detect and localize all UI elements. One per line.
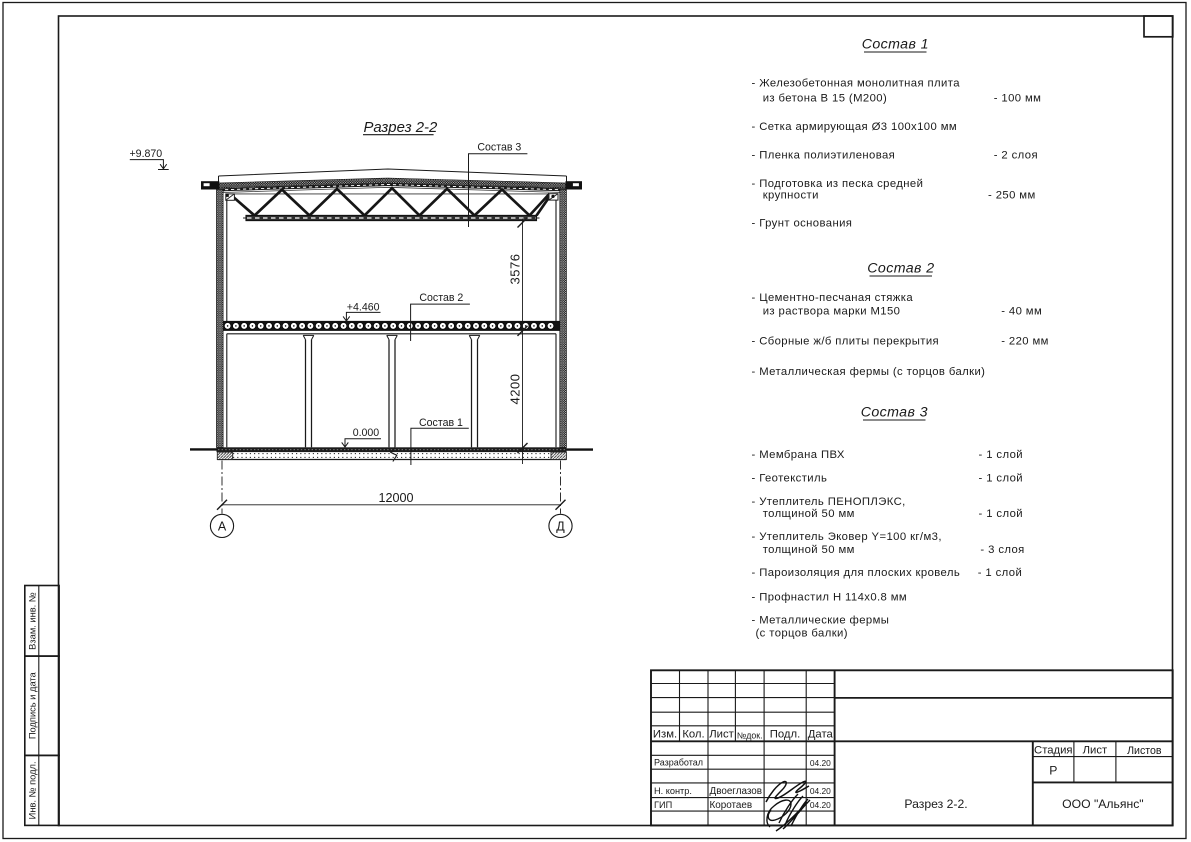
svg-text:- Мембрана ПВХ: - Мембрана ПВХ: [752, 449, 845, 461]
svg-text:4200: 4200: [508, 374, 523, 405]
svg-text:- Пленка полиэтиленовая: - Пленка полиэтиленовая: [752, 150, 896, 162]
svg-text:толщиной 50 мм: толщиной 50 мм: [763, 508, 855, 520]
svg-text:толщиной 50 мм: толщиной 50 мм: [763, 544, 855, 556]
svg-text:Изм.: Изм.: [653, 729, 677, 741]
svg-text:Листов: Листов: [1127, 745, 1162, 757]
svg-text:Подпись и дата: Подпись и дата: [28, 671, 38, 739]
svg-text:- Профнастил Н 114х0.8 мм: - Профнастил Н 114х0.8 мм: [752, 592, 908, 604]
svg-text:04.20: 04.20: [810, 758, 831, 768]
svg-text:- 2 слоя: - 2 слоя: [994, 150, 1038, 162]
svg-text:Коротаев: Коротаев: [710, 800, 753, 811]
svg-text:- Металлические фермы: - Металлические фермы: [752, 615, 890, 627]
svg-text:Р: Р: [1049, 764, 1057, 778]
svg-text:№док.: №док.: [737, 731, 763, 741]
svg-text:- 3 слоя: - 3 слоя: [980, 544, 1024, 556]
svg-text:- Железобетонная монолитная п: - Железобетонная монолитная плита: [752, 78, 961, 90]
svg-text:12000: 12000: [378, 491, 413, 505]
svg-text:- Грунт основания: - Грунт основания: [752, 218, 853, 230]
svg-text:крупности: крупности: [763, 190, 819, 202]
svg-text:- Металлическая фермы (с торцо: - Металлическая фермы (с торцов балки): [752, 366, 986, 378]
svg-text:- Утеплитель Эковер Y=100 кг/м: - Утеплитель Эковер Y=100 кг/м3,: [752, 531, 942, 543]
svg-text:Подл.: Подл.: [770, 729, 800, 741]
svg-text:из раствора марки М150: из раствора марки М150: [763, 306, 901, 318]
svg-text:- Сборные ж/б плиты перекрытия: - Сборные ж/б плиты перекрытия: [752, 336, 940, 348]
svg-text:Лист: Лист: [709, 729, 734, 741]
svg-text:0.000: 0.000: [353, 427, 380, 439]
svg-text:Взам. инв. №: Взам. инв. №: [28, 592, 38, 650]
svg-text:+4.460: +4.460: [347, 301, 380, 313]
svg-text:Состав 2: Состав 2: [867, 261, 934, 277]
svg-text:Лист: Лист: [1083, 744, 1108, 756]
svg-text:- 100 мм: - 100 мм: [994, 93, 1042, 105]
svg-text:ООО "Альянс": ООО "Альянс": [1062, 797, 1144, 811]
svg-text:+9.870: +9.870: [130, 148, 163, 160]
svg-text:Стадия: Стадия: [1034, 744, 1073, 756]
svg-text:А: А: [218, 519, 227, 533]
svg-text:(с торцов балки): (с торцов балки): [756, 628, 848, 640]
svg-text:- 220 мм: - 220 мм: [1001, 336, 1049, 348]
svg-text:Н. контр.: Н. контр.: [654, 786, 692, 796]
svg-text:3576: 3576: [508, 254, 523, 285]
svg-text:Разрез 2-2: Разрез 2-2: [364, 120, 439, 136]
svg-text:Состав 3: Состав 3: [861, 405, 928, 421]
svg-text:Д: Д: [556, 519, 565, 533]
svg-text:Разработал: Разработал: [654, 758, 703, 768]
svg-text:- Геотекстиль: - Геотекстиль: [752, 473, 828, 485]
svg-text:- Утеплитель ПЕНОПЛЭКС,: - Утеплитель ПЕНОПЛЭКС,: [752, 496, 906, 508]
svg-text:- 40 мм: - 40 мм: [1001, 306, 1042, 318]
svg-text:- Сетка армирующая Ø3 100х100: - Сетка армирующая Ø3 100х100 мм: [752, 121, 958, 133]
svg-text:ГИП: ГИП: [654, 800, 672, 810]
svg-text:Двоеглазов: Двоеглазов: [710, 786, 763, 797]
svg-text:из бетона В 15 (М200): из бетона В 15 (М200): [763, 93, 887, 105]
svg-text:Дата: Дата: [808, 729, 834, 741]
svg-text:Состав 1: Состав 1: [419, 417, 463, 429]
svg-text:Инв. № подл.: Инв. № подл.: [28, 761, 38, 819]
svg-text:- Цементно-песчаная стяжка: - Цементно-песчаная стяжка: [752, 292, 914, 304]
svg-text:- 1 слой: - 1 слой: [978, 567, 1022, 579]
svg-text:- 1 слой: - 1 слой: [979, 449, 1023, 461]
svg-text:04.20: 04.20: [810, 786, 831, 796]
svg-text:- 250 мм: - 250 мм: [988, 190, 1036, 202]
svg-text:04.20: 04.20: [810, 800, 831, 810]
svg-text:Состав 1: Состав 1: [862, 37, 929, 53]
svg-text:- 1 слой: - 1 слой: [979, 508, 1023, 520]
svg-text:Разрез 2-2.: Разрез 2-2.: [904, 797, 967, 811]
svg-text:- Подготовка из песка средней: - Подготовка из песка средней: [752, 178, 924, 190]
svg-text:Состав 2: Состав 2: [419, 292, 463, 304]
svg-text:Кол.: Кол.: [682, 729, 704, 741]
svg-text:Состав 3: Состав 3: [477, 142, 521, 154]
svg-text:- 1 слой: - 1 слой: [979, 473, 1023, 485]
svg-text:- Пароизоляция для плоских кро: - Пароизоляция для плоских кровель: [752, 567, 961, 579]
